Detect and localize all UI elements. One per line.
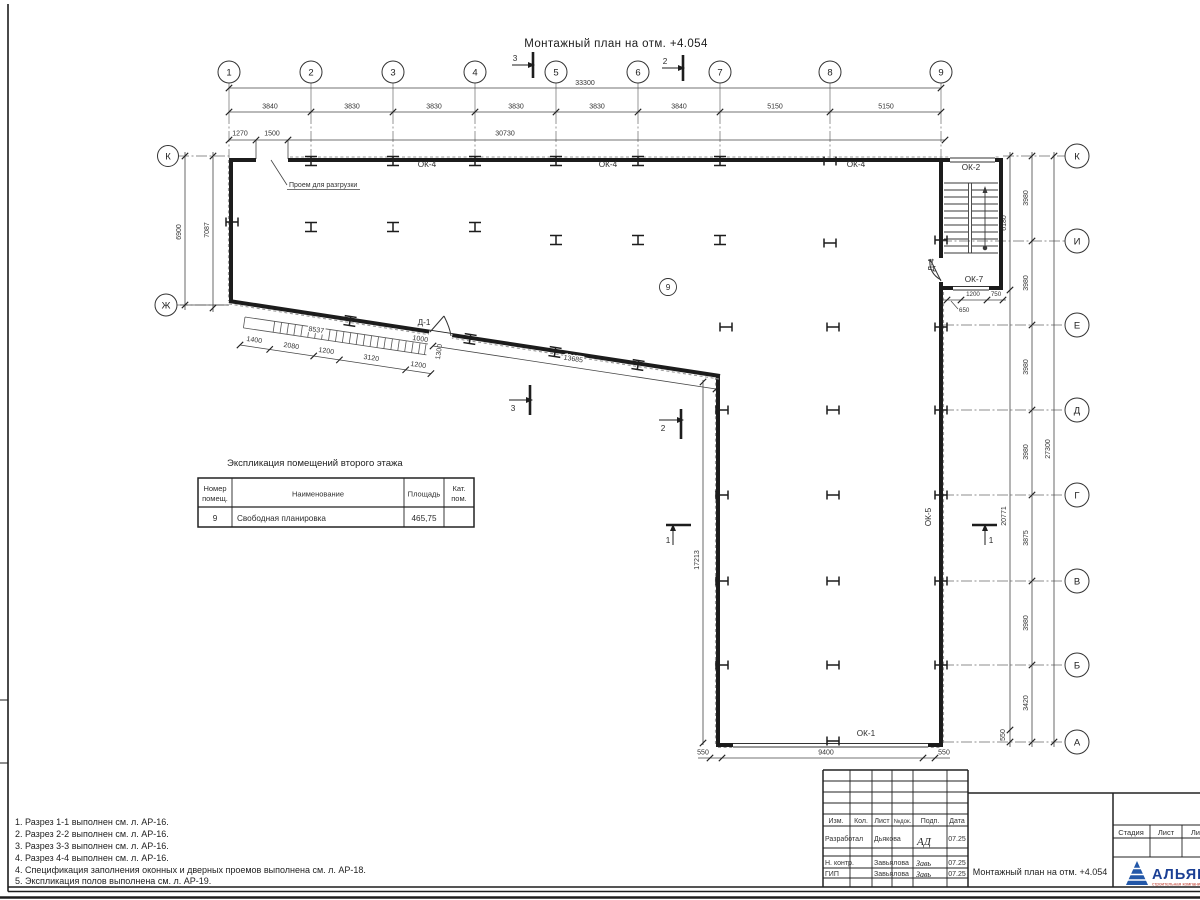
dim-right-550: 550 (1000, 729, 1007, 741)
tb-name-1: Дьякова (874, 836, 901, 843)
tb-col-ndok: №док. (894, 818, 912, 825)
dim-band-end-1000: 1000 (412, 335, 429, 344)
svg-text:30730: 30730 (495, 131, 515, 138)
svg-text:2080: 2080 (283, 342, 300, 351)
svg-text:3980: 3980 (1023, 615, 1030, 631)
column-symbols (226, 157, 947, 746)
svg-text:3830: 3830 (344, 104, 360, 111)
svg-text:2: 2 (663, 57, 668, 66)
dims-stair-bottom: 1200 750 650 (943, 291, 1006, 314)
room-tag: 9 (660, 279, 677, 296)
floor-plan-canvas: Монтажный план на отм. +4.054 1 2 (0, 0, 1200, 900)
label-ok1: ОК-1 (857, 729, 876, 738)
grid-row-I: И (1074, 237, 1081, 248)
label-ok7: ОК-7 (965, 275, 984, 284)
svg-text:Кат.: Кат. (452, 484, 465, 493)
tb-name-3: Завьялова (874, 871, 909, 878)
sheet-frame (0, 4, 1200, 898)
tb-sheets: Лист (1191, 828, 1200, 837)
grid-col-8: 8 (827, 68, 832, 79)
svg-text:3875: 3875 (1023, 530, 1030, 546)
ramp-dim-ticks (237, 342, 719, 392)
svg-text:3120: 3120 (363, 354, 380, 363)
explication-table: Экспликация помещений второго этажа Номе… (198, 458, 474, 527)
tb-role-1: Разработал (825, 835, 863, 843)
tb-role-2: Н. контр. (825, 860, 854, 867)
svg-text:3: 3 (513, 54, 518, 63)
grid-row-K-left: К (165, 152, 171, 163)
svg-text:3840: 3840 (671, 104, 687, 111)
svg-text:3840: 3840 (262, 104, 278, 111)
tb-date-1: 07.25 (948, 836, 966, 843)
tb-col-izm: Изм. (829, 818, 844, 825)
logo-triangle-icon (1126, 861, 1148, 885)
grid-row-K: К (1074, 152, 1080, 163)
grid-row-A: А (1074, 738, 1081, 749)
svg-text:пом.: пом. (451, 494, 466, 503)
tb-stage: Стадия (1118, 828, 1144, 837)
svg-text:3830: 3830 (589, 104, 605, 111)
tb-date-3: 07.25 (948, 871, 966, 878)
table-cell-num: 9 (213, 514, 218, 523)
grid-row-D: Д (1074, 406, 1081, 417)
dim-band-total: 8537 (308, 326, 325, 335)
door-d1 (429, 316, 452, 337)
drawing-sheet: Монтажный план на отм. +4.054 1 2 (0, 0, 1200, 900)
label-ok2: ОК-2 (962, 163, 981, 172)
label-d1: Д-1 (418, 318, 431, 327)
dims-top-labels: 33300 3840 3830 3830 3830 3830 3840 5150… (232, 80, 894, 138)
walls (229, 158, 1003, 747)
dim-diag-13685: 13685 (563, 355, 583, 365)
grid-col-6: 6 (635, 68, 640, 79)
svg-text:550: 550 (697, 750, 709, 757)
table-cell-name: Свободная планировка (237, 514, 326, 523)
page-title: Монтажный план на отм. +4.054 (524, 38, 708, 50)
label-d4: Д-4 (927, 258, 936, 271)
label-ok5: ОК-5 (924, 507, 933, 526)
tb-col-data: Дата (949, 818, 965, 825)
svg-text:3830: 3830 (508, 104, 524, 111)
grid-row-V: В (1074, 577, 1080, 588)
dim-total-top: 33300 (575, 80, 595, 87)
svg-text:1200: 1200 (410, 361, 427, 370)
tb-role-3: ГИП (825, 871, 839, 878)
grid-col-7: 7 (717, 68, 722, 79)
table-row: 9 Свободная планировка 465,75 (213, 514, 437, 523)
svg-text:1500: 1500 (264, 131, 280, 138)
grid-col-1: 1 (226, 68, 231, 79)
dim-right-total: 27300 (1045, 439, 1052, 459)
svg-text:1270: 1270 (232, 131, 248, 138)
dims-left-ticks (182, 153, 216, 311)
dims-top (229, 88, 945, 159)
company-logo: АЛЬЯНС строительная компания (1126, 861, 1200, 887)
svg-text:750: 750 (991, 291, 1002, 298)
table-header-name: Наименование (292, 490, 344, 499)
opening-callout: Проем для разгрузки (271, 160, 360, 190)
dim-left-7087: 7087 (204, 222, 211, 238)
note-4: 4. Разрез 4-4 выполнен см. л. АР-16. (15, 853, 169, 863)
label-ok4-2: ОК-4 (599, 160, 618, 169)
section-labels: 3 2 3 2 1 1 (511, 54, 994, 545)
tb-date-2: 07.25 (948, 860, 966, 867)
svg-text:3: 3 (511, 404, 516, 413)
svg-text:5150: 5150 (767, 104, 783, 111)
tb-col-list: Лист (874, 818, 890, 825)
note-5: 4. Спецификация заполнения оконных и две… (15, 865, 366, 875)
grid-col-5: 5 (553, 68, 558, 79)
note-3: 3. Разрез 3-3 выполнен см. л. АР-16. (15, 841, 169, 851)
svg-text:Номер: Номер (203, 484, 226, 493)
tb-doc-title: Монтажный план на отм. +4.054 (973, 867, 1108, 877)
table-header-area: Площадь (408, 490, 441, 499)
svg-text:9400: 9400 (818, 750, 834, 757)
tb-sig-3: Завь (916, 870, 931, 879)
grid-row-B: Б (1074, 661, 1080, 672)
grid-bubbles: 1 2 3 4 5 6 7 8 9 К И Е Д Г В Б А К Ж (155, 61, 1089, 754)
note-2: 2. Разрез 2-2 выполнен см. л. АР-16. (15, 829, 169, 839)
svg-text:5150: 5150 (878, 104, 894, 111)
tb-sheet: Лист (1158, 828, 1175, 837)
label-ok4-3: ОК-4 (847, 160, 866, 169)
dim-band-end-1300: 1300 (435, 343, 444, 360)
dim-left-6900: 6900 (176, 224, 183, 240)
plan-labels: ОК-4 ОК-4 ОК-4 ОК-2 ОК-7 ОК-5 ОК-1 Д-1 Д… (418, 160, 984, 738)
svg-text:3980: 3980 (1023, 190, 1030, 206)
ramp-dims (240, 345, 716, 389)
logo-subtitle: строительная компания (1152, 882, 1200, 887)
dims-bottom: 550 9400 550 (697, 750, 950, 762)
svg-text:1200: 1200 (318, 347, 335, 356)
grid-col-9: 9 (938, 68, 943, 79)
svg-text:2: 2 (661, 424, 666, 433)
tb-col-kol: Кол. (854, 818, 868, 825)
grid-row-Zh-left: Ж (162, 301, 171, 312)
window-ok1 (733, 742, 928, 749)
grid-col-4: 4 (472, 68, 477, 79)
grid-row-G: Г (1074, 491, 1079, 502)
tb-name-2: Завьялова (874, 860, 909, 867)
notes: 1. Разрез 1-1 выполнен см. л. АР-16. 2. … (15, 817, 366, 886)
label-ok4-1: ОК-4 (418, 160, 437, 169)
tb-sig-1: АД (916, 836, 932, 848)
title-block: Изм. Кол. Лист №док. Подп. Дата Разработ… (823, 770, 1200, 887)
dim-lower-wall: 17213 (694, 379, 706, 746)
svg-text:1: 1 (989, 536, 994, 545)
svg-text:9: 9 (666, 283, 671, 292)
svg-text:3980: 3980 (1023, 275, 1030, 291)
svg-text:3980: 3980 (1023, 444, 1030, 460)
svg-text:1200: 1200 (966, 291, 980, 298)
svg-text:1400: 1400 (246, 336, 263, 345)
svg-text:3830: 3830 (426, 104, 442, 111)
svg-text:1: 1 (666, 536, 671, 545)
svg-text:помещ.: помещ. (202, 494, 228, 503)
dims-right-labels: 6180 20771 550 3980 3980 3980 3980 3875 … (1000, 190, 1052, 741)
svg-text:650: 650 (959, 307, 970, 314)
grid-row-E: Е (1074, 321, 1080, 332)
table-cell-area: 465,75 (411, 514, 436, 523)
svg-text:17213: 17213 (694, 550, 701, 570)
label-opening: Проем для разгрузки (289, 182, 357, 189)
wall-texture (229, 157, 1002, 748)
note-6: 5. Экспликация полов выполнена см. л. АР… (15, 876, 211, 886)
dims-top-ticks (226, 85, 948, 143)
tb-col-podp: Подп. (921, 818, 940, 825)
grid-col-2: 2 (308, 68, 313, 79)
section-marks (509, 52, 997, 545)
grid-col-3: 3 (390, 68, 395, 79)
svg-text:550: 550 (938, 750, 950, 757)
svg-text:3420: 3420 (1023, 695, 1030, 711)
svg-text:3980: 3980 (1023, 359, 1030, 375)
table-title: Экспликация помещений второго этажа (227, 458, 403, 469)
dim-right-wall: 20771 (1001, 506, 1008, 526)
staircase (944, 183, 998, 253)
tb-sig-2: Завь (916, 859, 931, 868)
note-1: 1. Разрез 1-1 выполнен см. л. АР-16. (15, 817, 169, 827)
